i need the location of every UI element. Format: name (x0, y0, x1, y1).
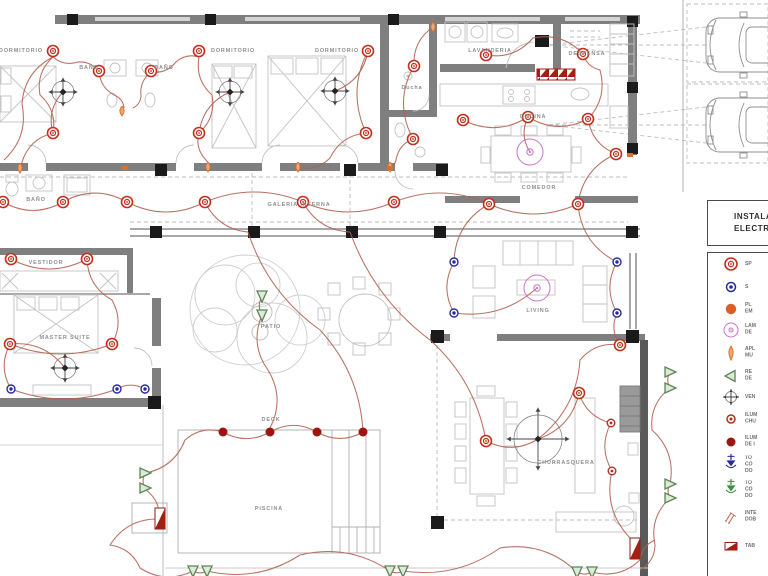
legend-item-label: TOCODO (745, 481, 753, 500)
room-label: DESPENSA (569, 51, 606, 56)
deck-light-symbol (266, 428, 275, 437)
deck-light-symbol (219, 428, 228, 437)
circuit-wire (20, 133, 53, 168)
room-label: LAVANDERIA (468, 48, 512, 53)
circuit-wire (11, 385, 145, 399)
circuit-wire (403, 547, 577, 573)
circuit-wire (335, 51, 368, 91)
ceiling-spot-symbol (5, 339, 16, 350)
ceiling-spot-symbol (389, 197, 400, 208)
ceiling-spot-symbol (58, 197, 69, 208)
electrical-panel-symbol (630, 538, 640, 559)
ceiling-spot-symbol (107, 339, 118, 350)
reflector-symbol (202, 566, 212, 576)
circuit-wire (87, 259, 118, 344)
ceiling-spot-symbol (611, 149, 622, 160)
circuit-wire (99, 72, 124, 108)
circuit-wire (588, 119, 616, 154)
deck-light-icon (722, 433, 740, 451)
outlet-symbol (613, 258, 621, 266)
legend-item-label: APLMU (745, 347, 755, 360)
circuit-wire (583, 54, 602, 119)
spot-icon (722, 255, 740, 273)
circuit-wire (447, 262, 454, 313)
grill-light-symbol (607, 419, 615, 427)
reflector-symbol (385, 566, 395, 576)
legend-item-label: INTEDOB (745, 511, 756, 524)
outlet-symbol (450, 258, 458, 266)
reflector-icon (722, 367, 740, 385)
room-label: DORMITORIO (315, 48, 359, 53)
legend-item-lamp: LAMDE (722, 321, 760, 339)
reflector-symbol (140, 468, 151, 478)
ceiling-spot-symbol (194, 46, 205, 57)
legend-item-label: S (745, 284, 748, 290)
ceiling-fan-symbol (321, 77, 350, 106)
ceiling-spot-symbol (615, 340, 626, 351)
legend-item-toma-blue: TOCODO (722, 452, 756, 478)
legend-item-socket: PLEM (722, 300, 756, 318)
room-label: LIVING (526, 308, 549, 313)
ceiling-spot-symbol (481, 436, 492, 447)
legend-item-deck-light: ILUMDE I (722, 433, 762, 451)
car-1 (706, 12, 768, 78)
room-label: BAÑO (154, 65, 174, 70)
circuit-wire (298, 133, 366, 168)
ceiling-spot-symbol (583, 114, 594, 125)
ceiling-spot-symbol (363, 46, 374, 57)
ceiling-fan-symbol (216, 78, 245, 107)
ceiling-fan-symbol (51, 354, 80, 383)
legend-item-label: ILUMDE I (745, 436, 757, 449)
toma-blue-icon (722, 456, 740, 474)
legend-item-label: TOCODO (745, 456, 753, 475)
ceiling-spot-symbol (458, 115, 469, 126)
circuit-wire (207, 552, 390, 575)
legend-item-switch: INTEDOB (722, 508, 761, 526)
room-label: CHURRASQUERA (537, 460, 594, 465)
legend-box: SPSPLEMLAMDEAPLMUREDEVENILUMCHUILUMDE IT… (707, 252, 768, 576)
room-label: DECK (262, 417, 281, 422)
ceiling-spot-symbol (6, 254, 17, 265)
ceiling-spot-symbol (0, 197, 9, 208)
wall-sconce-symbol (120, 106, 124, 116)
room-label: COCINA (520, 114, 547, 119)
level-marker (122, 166, 128, 170)
reflector-symbol (257, 291, 267, 302)
circuit-wire (145, 430, 223, 473)
legend-item-grill-light: ILUMCHU (722, 410, 762, 428)
car-2 (706, 92, 768, 158)
circuit-wire (133, 72, 151, 108)
room-label: Ducha (402, 85, 423, 90)
grill-light-symbol (608, 467, 616, 475)
room-label: MASTER SUITE (40, 335, 91, 340)
reflector-symbol (188, 566, 198, 576)
outlet-symbol (450, 309, 458, 317)
reflector-symbol (665, 367, 676, 377)
legend-item-label: REDE (745, 370, 752, 383)
toma-green-icon (722, 481, 740, 499)
reflector-symbol (587, 567, 597, 576)
outlet-symbol (613, 309, 621, 317)
lamp-icon (722, 321, 740, 339)
legend-title-line2: ELECTR (708, 223, 768, 235)
wall-sconce-symbol (18, 163, 22, 173)
reflector-symbol (140, 483, 151, 493)
room-label: BAÑO (79, 65, 99, 70)
ceiling-fan-symbol (49, 78, 78, 107)
fan-icon (722, 388, 740, 406)
room-label: VESTIDOR (29, 260, 64, 265)
legend-title-line1: INSTALA (708, 211, 768, 223)
circuit-wire (199, 92, 230, 133)
ceiling-spot-symbol (194, 128, 205, 139)
hanging-lamp-symbol (517, 139, 543, 165)
ceiling-spot-symbol (122, 197, 133, 208)
legend-item-reflector: REDE (722, 367, 755, 385)
circuit-wire (223, 425, 363, 438)
legend-item-label: LAMDE (745, 324, 756, 337)
legend-item-outlet: S (722, 278, 750, 296)
circuit-wire (652, 388, 672, 484)
ceiling-spot-symbol (484, 199, 495, 210)
circuit-wire (605, 423, 612, 471)
circuit-wire (257, 315, 277, 428)
floor-plan-svg (0, 0, 768, 576)
ceiling-spot-symbol (82, 254, 93, 265)
ceiling-spot-symbol (48, 128, 59, 139)
room-label: BAÑO (26, 197, 46, 202)
ceiling-spot-symbol (574, 388, 585, 399)
outlet-symbol (7, 385, 15, 393)
circuit-wire (578, 204, 617, 262)
room-label: GALERIA INTERNA (267, 202, 330, 207)
ceiling-spot-symbol (48, 46, 59, 57)
reflector-symbol (665, 493, 676, 503)
ceiling-spot-symbol (409, 61, 420, 72)
room-label: DORMITORIO (211, 48, 255, 53)
legend-item-label: PLEM (745, 303, 753, 316)
floor-plan-canvas: DORMITORIOBAÑOBAÑODORMITORIODORMITORIODu… (0, 0, 768, 576)
circuit-wire (454, 204, 489, 262)
wires-layer (3, 27, 671, 576)
reflector-symbol (665, 383, 676, 393)
legend-item-sconce: APLMU (722, 344, 759, 362)
level-marker (627, 153, 633, 157)
outlet-symbol (113, 385, 121, 393)
electrical-panel-symbol (155, 508, 165, 529)
room-label: DORMITORIO (0, 48, 43, 53)
legend-item-panel: TAB (722, 537, 759, 555)
legend-item-toma-green: TOCODO (722, 477, 756, 503)
deck-light-symbol (359, 428, 368, 437)
legend-item-label: TAB (745, 543, 755, 549)
circuit-wire (357, 51, 368, 133)
legend-item-label: SP (745, 261, 752, 267)
outlet-symbol (141, 385, 149, 393)
columns-layer (67, 14, 639, 529)
legend-item-spot: SP (722, 255, 754, 273)
grill-light-icon (722, 410, 740, 428)
ceiling-spot-symbol (200, 197, 211, 208)
socket-icon (722, 300, 740, 318)
deck-light-symbol (313, 428, 322, 437)
circuit-wire (205, 202, 248, 232)
circuit-wire (110, 519, 193, 576)
ceiling-spot-symbol (361, 128, 372, 139)
legend-item-label: VEN (745, 394, 755, 400)
circuit-wire (4, 344, 11, 389)
circuit-wire (610, 262, 617, 313)
ceiling-spot-symbol (573, 199, 584, 210)
reflector-symbol (572, 567, 582, 576)
room-label: PISCINA (255, 506, 283, 511)
switch-icon (722, 508, 740, 526)
legend-item-label: ILUMCHU (745, 413, 757, 426)
circuit-wire (248, 232, 363, 432)
outlet-icon (722, 278, 740, 296)
room-label: COMEDOR (522, 185, 557, 190)
panel-icon (722, 537, 740, 555)
level-marker (387, 166, 393, 170)
legend-title-block: INSTALA ELECTR (707, 200, 768, 246)
ceiling-spot-symbol (408, 134, 419, 145)
sconce-icon (722, 344, 740, 362)
room-label: PATIO (261, 324, 281, 329)
legend-item-fan: VEN (722, 388, 759, 406)
circuit-wire (198, 57, 213, 133)
hanging-lamp-symbol (524, 275, 550, 301)
reflector-symbol (257, 310, 267, 321)
circuit-wire (610, 471, 632, 540)
